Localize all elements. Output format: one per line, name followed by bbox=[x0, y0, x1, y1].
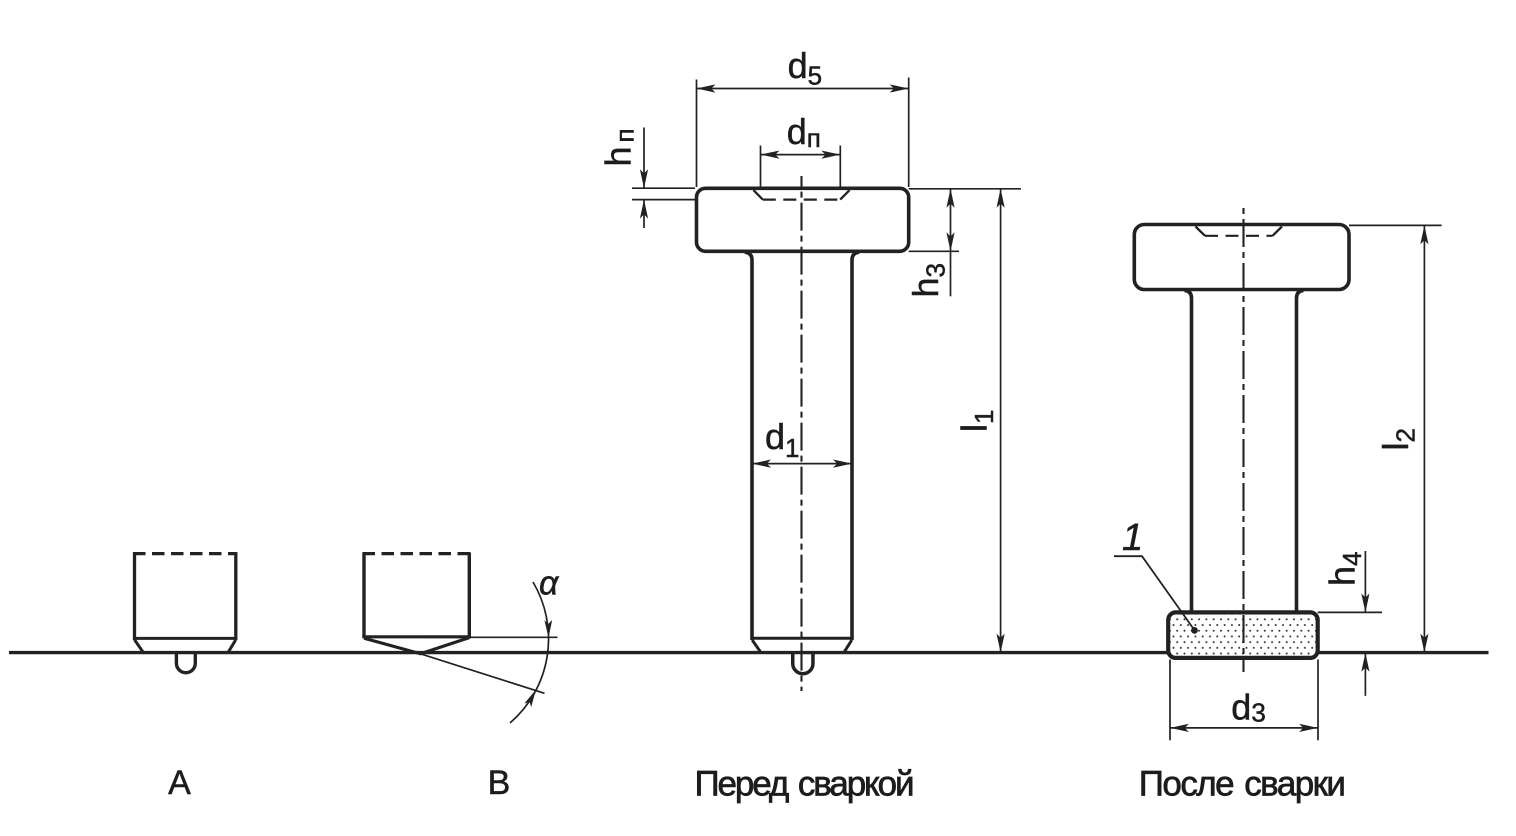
svg-text:B: B bbox=[488, 764, 511, 802]
svg-text:h4: h4 bbox=[1322, 552, 1368, 587]
svg-text:d3: d3 bbox=[1231, 686, 1266, 727]
svg-text:α: α bbox=[539, 565, 560, 603]
svg-text:После сварки: После сварки bbox=[1139, 764, 1345, 803]
svg-text:dп: dп bbox=[787, 111, 821, 153]
svg-text:hп: hп bbox=[598, 128, 640, 166]
svg-text:d5: d5 bbox=[788, 45, 823, 91]
svg-text:1: 1 bbox=[1122, 517, 1143, 559]
svg-text:l2: l2 bbox=[1375, 428, 1421, 450]
svg-text:d1: d1 bbox=[765, 416, 800, 463]
svg-text:Перед сваркой: Перед сваркой bbox=[695, 764, 914, 803]
svg-text:h3: h3 bbox=[905, 263, 951, 298]
svg-text:A: A bbox=[168, 764, 191, 802]
svg-text:l1: l1 bbox=[954, 410, 1000, 432]
